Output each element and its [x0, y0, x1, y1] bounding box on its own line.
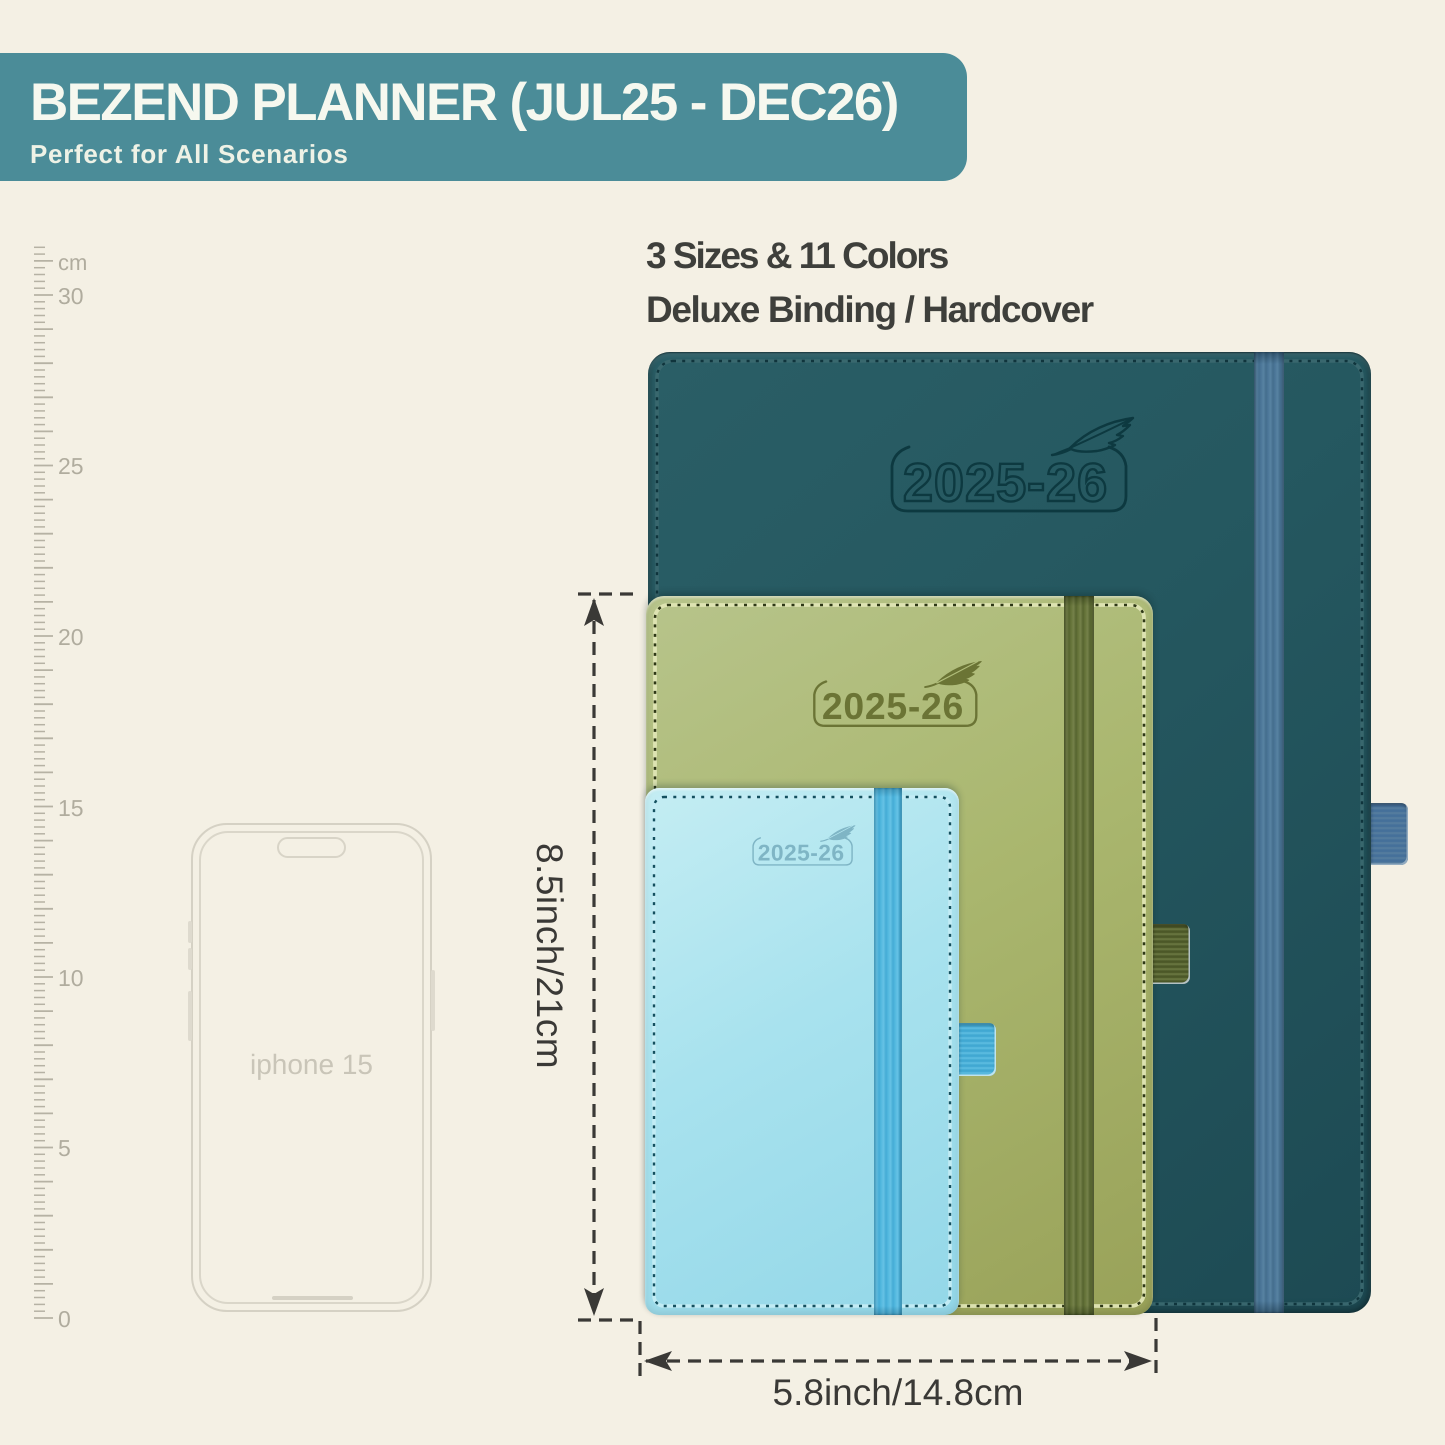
svg-text:2025-26: 2025-26 — [822, 686, 964, 728]
svg-text:0: 0 — [58, 1306, 71, 1332]
svg-text:cm: cm — [58, 250, 87, 275]
svg-text:20: 20 — [58, 624, 84, 650]
svg-text:2025-26: 2025-26 — [903, 453, 1108, 513]
svg-text:5: 5 — [58, 1135, 71, 1161]
svg-text:10: 10 — [58, 965, 84, 991]
svg-text:30: 30 — [58, 283, 84, 309]
svg-text:15: 15 — [58, 795, 84, 821]
svg-text:2025-26: 2025-26 — [758, 840, 845, 865]
svg-text:25: 25 — [58, 453, 84, 479]
